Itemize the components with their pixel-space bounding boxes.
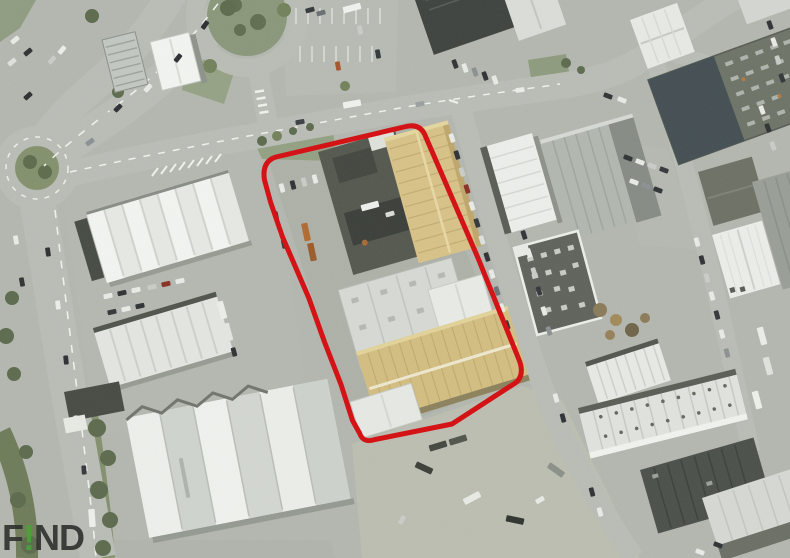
photo-grain-overlay bbox=[0, 0, 790, 558]
aerial-photo-canvas: F!ND bbox=[0, 0, 790, 558]
aerial-map: F!ND bbox=[0, 0, 790, 558]
watermark-prefix: F bbox=[2, 517, 23, 558]
watermark-suffix: ND bbox=[34, 517, 84, 558]
find-watermark: F!ND bbox=[2, 517, 84, 558]
watermark-accent: ! bbox=[23, 517, 34, 558]
